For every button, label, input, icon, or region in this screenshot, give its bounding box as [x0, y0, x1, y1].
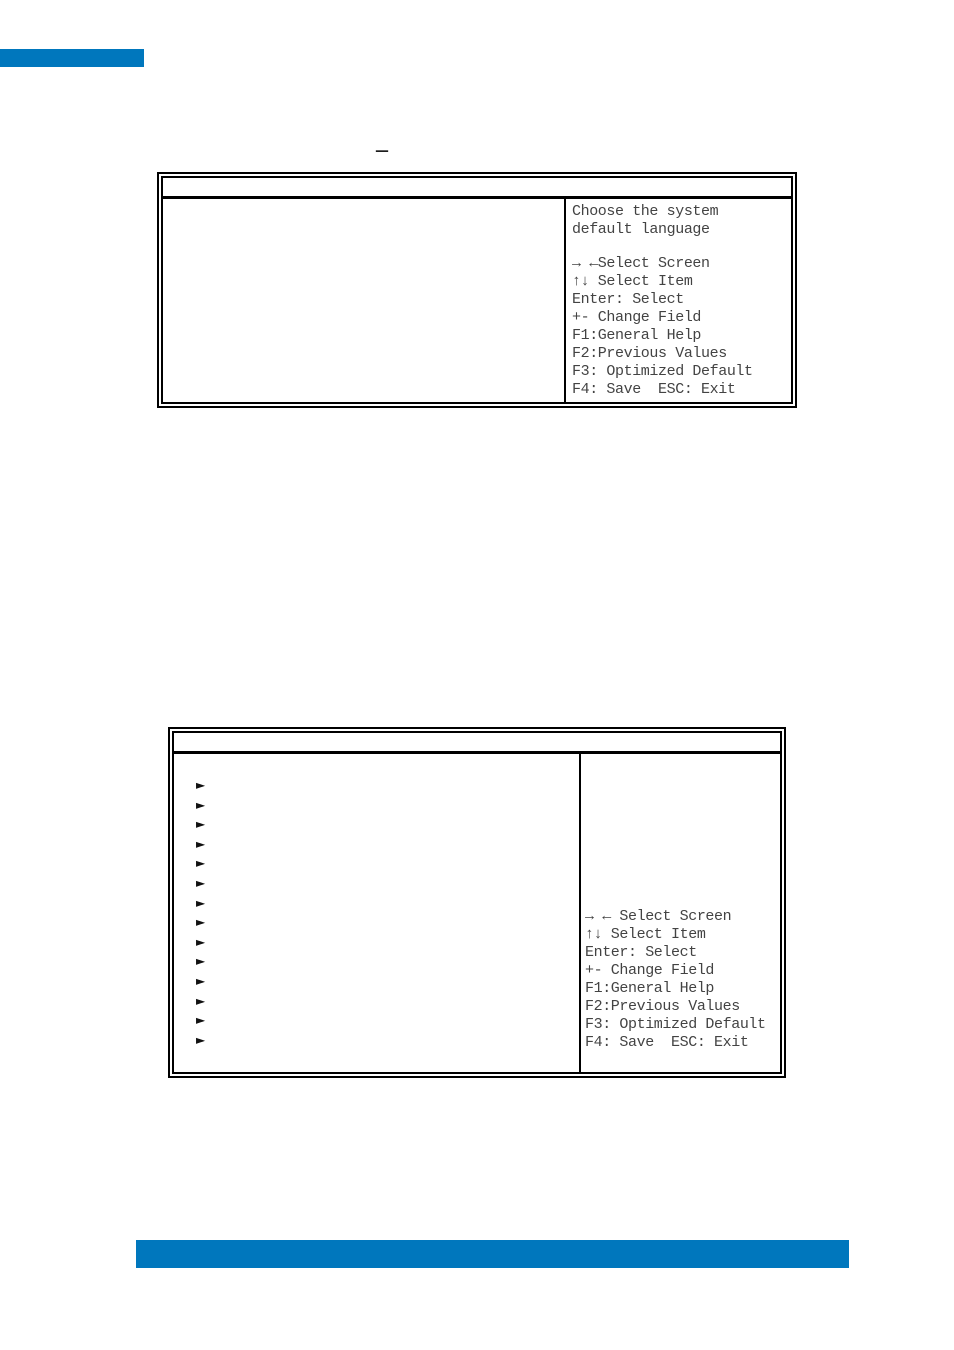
- help-description-line: default language: [572, 221, 789, 239]
- submenu-arrow-icon: ►: [196, 894, 579, 914]
- help-key-hint: Enter: Select: [572, 291, 789, 309]
- help-key-hint: +- Change Field: [572, 309, 789, 327]
- help-key-hint: F2:Previous Values: [585, 998, 778, 1016]
- submenu-arrow-icon: ►: [196, 854, 579, 874]
- submenu-arrow-icon: ►: [196, 776, 579, 796]
- bios-screen-submenus: ► ► ► ► ► ► ► ► ► ► ► ► ► ► → ← Select S…: [168, 727, 786, 1078]
- help-key-hint: +- Change Field: [585, 962, 778, 980]
- bios-screen-language: Choose the system default language → ←Se…: [157, 172, 797, 408]
- help-gap: [572, 239, 789, 255]
- submenu-arrow-icon: ►: [196, 835, 579, 855]
- submenu-arrow-icon: ►: [196, 796, 579, 816]
- help-key-hint: F1:General Help: [585, 980, 778, 998]
- submenu-arrow-icon: ►: [196, 933, 579, 953]
- submenu-arrow-icon: ►: [196, 874, 579, 894]
- help-key-hint: F3: Optimized Default: [572, 363, 789, 381]
- submenu-arrow-icon: ►: [196, 952, 579, 972]
- section-heading-dash: –: [376, 138, 388, 162]
- help-key-hint: → ←Select Screen: [572, 255, 789, 273]
- submenu-arrow-icon: ►: [196, 1031, 579, 1051]
- bios-title-bar: [163, 178, 791, 199]
- footer-accent-bar: [136, 1240, 849, 1268]
- submenu-arrow-icon: ►: [196, 815, 579, 835]
- help-key-hint: F2:Previous Values: [572, 345, 789, 363]
- submenu-arrow-icon: ►: [196, 913, 579, 933]
- submenu-arrow-icon: ►: [196, 992, 579, 1012]
- bios-title-bar: [174, 733, 780, 754]
- help-key-hint: F3: Optimized Default: [585, 1016, 778, 1034]
- help-key-hint: ↑↓ Select Item: [585, 926, 778, 944]
- top-left-accent-bar: [0, 49, 144, 67]
- bios-help-panel: Choose the system default language → ←Se…: [564, 199, 791, 402]
- bios-screen-submenus-frame: ► ► ► ► ► ► ► ► ► ► ► ► ► ► → ← Select S…: [172, 731, 782, 1074]
- help-description-line: Choose the system: [572, 203, 789, 221]
- help-key-hint: F4: Save ESC: Exit: [585, 1034, 778, 1052]
- manual-page: – Choose the system default language → ←…: [0, 0, 954, 1350]
- help-key-hint: F4: Save ESC: Exit: [572, 381, 789, 399]
- bios-screen-body: Choose the system default language → ←Se…: [163, 199, 791, 402]
- submenu-arrow-icon: ►: [196, 1011, 579, 1031]
- help-key-hint: → ← Select Screen: [585, 908, 778, 926]
- help-key-hint: Enter: Select: [585, 944, 778, 962]
- bios-options-column: [163, 199, 564, 402]
- bios-submenu-list: ► ► ► ► ► ► ► ► ► ► ► ► ► ►: [174, 754, 579, 1072]
- submenu-arrow-icon: ►: [196, 972, 579, 992]
- help-key-hint: ↑↓ Select Item: [572, 273, 789, 291]
- bios-screen-body: ► ► ► ► ► ► ► ► ► ► ► ► ► ► → ← Select S…: [174, 754, 780, 1072]
- help-key-hint: F1:General Help: [572, 327, 789, 345]
- bios-help-panel: → ← Select Screen ↑↓ Select Item Enter: …: [579, 754, 780, 1072]
- bios-screen-language-frame: Choose the system default language → ←Se…: [161, 176, 793, 404]
